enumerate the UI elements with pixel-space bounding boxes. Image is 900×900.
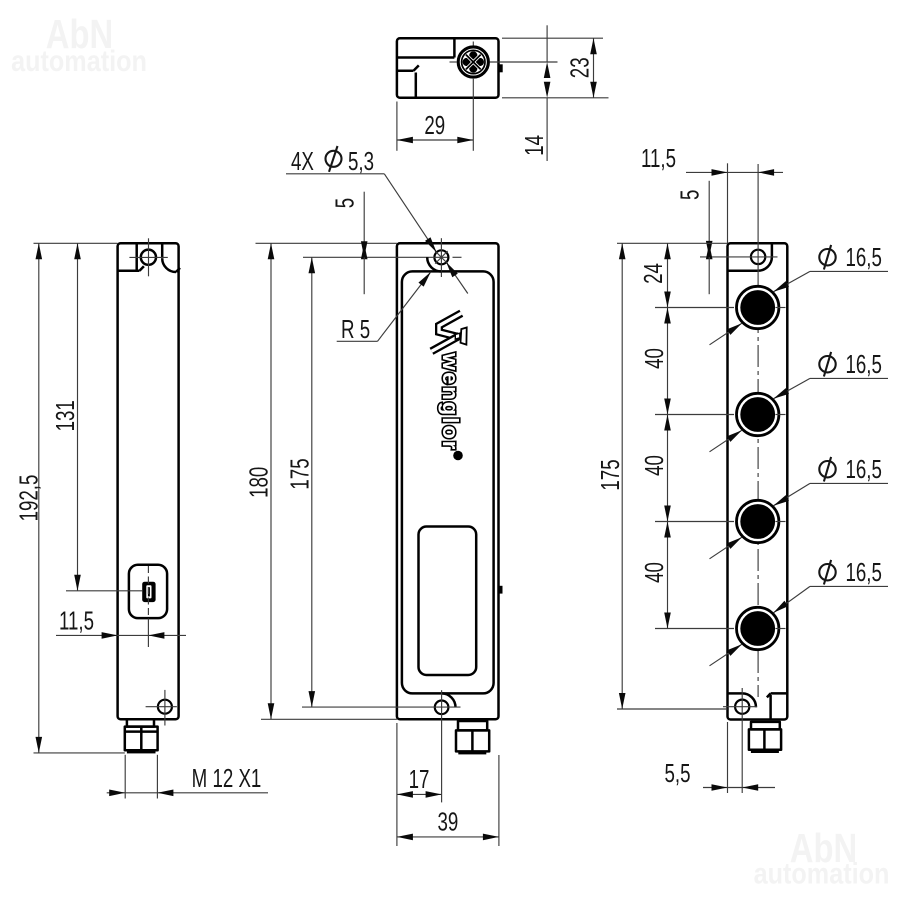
svg-text:16,5: 16,5 [846, 454, 882, 484]
svg-text:29: 29 [424, 110, 445, 140]
svg-text:40: 40 [639, 348, 669, 369]
svg-text:automation: automation [11, 44, 147, 78]
svg-text:automation: automation [754, 856, 890, 890]
svg-text:14: 14 [519, 135, 549, 156]
svg-text:4X: 4X [291, 146, 314, 176]
svg-text:175: 175 [284, 458, 314, 489]
svg-text:5: 5 [329, 198, 359, 208]
svg-text:16,5: 16,5 [846, 557, 882, 587]
svg-text:175: 175 [595, 459, 625, 490]
svg-text:5,5: 5,5 [664, 758, 690, 788]
svg-text:wenglor: wenglor [438, 352, 463, 451]
svg-text:39: 39 [437, 806, 458, 836]
svg-text:40: 40 [639, 455, 669, 476]
svg-text:5,3: 5,3 [348, 146, 374, 176]
svg-text:R 5: R 5 [341, 314, 370, 344]
svg-text:192,5: 192,5 [13, 475, 43, 522]
svg-text:23: 23 [564, 57, 594, 78]
svg-text:11,5: 11,5 [641, 143, 676, 173]
svg-text:17: 17 [409, 764, 430, 794]
svg-text:180: 180 [243, 467, 273, 498]
svg-text:24: 24 [638, 263, 668, 284]
svg-text:11,5: 11,5 [59, 605, 94, 635]
svg-text:16,5: 16,5 [846, 242, 882, 272]
svg-text:16,5: 16,5 [846, 349, 882, 379]
svg-text:131: 131 [50, 400, 80, 431]
svg-text:M 12 X1: M 12 X1 [192, 763, 262, 793]
svg-text:40: 40 [639, 562, 669, 583]
svg-text:5: 5 [674, 190, 704, 200]
